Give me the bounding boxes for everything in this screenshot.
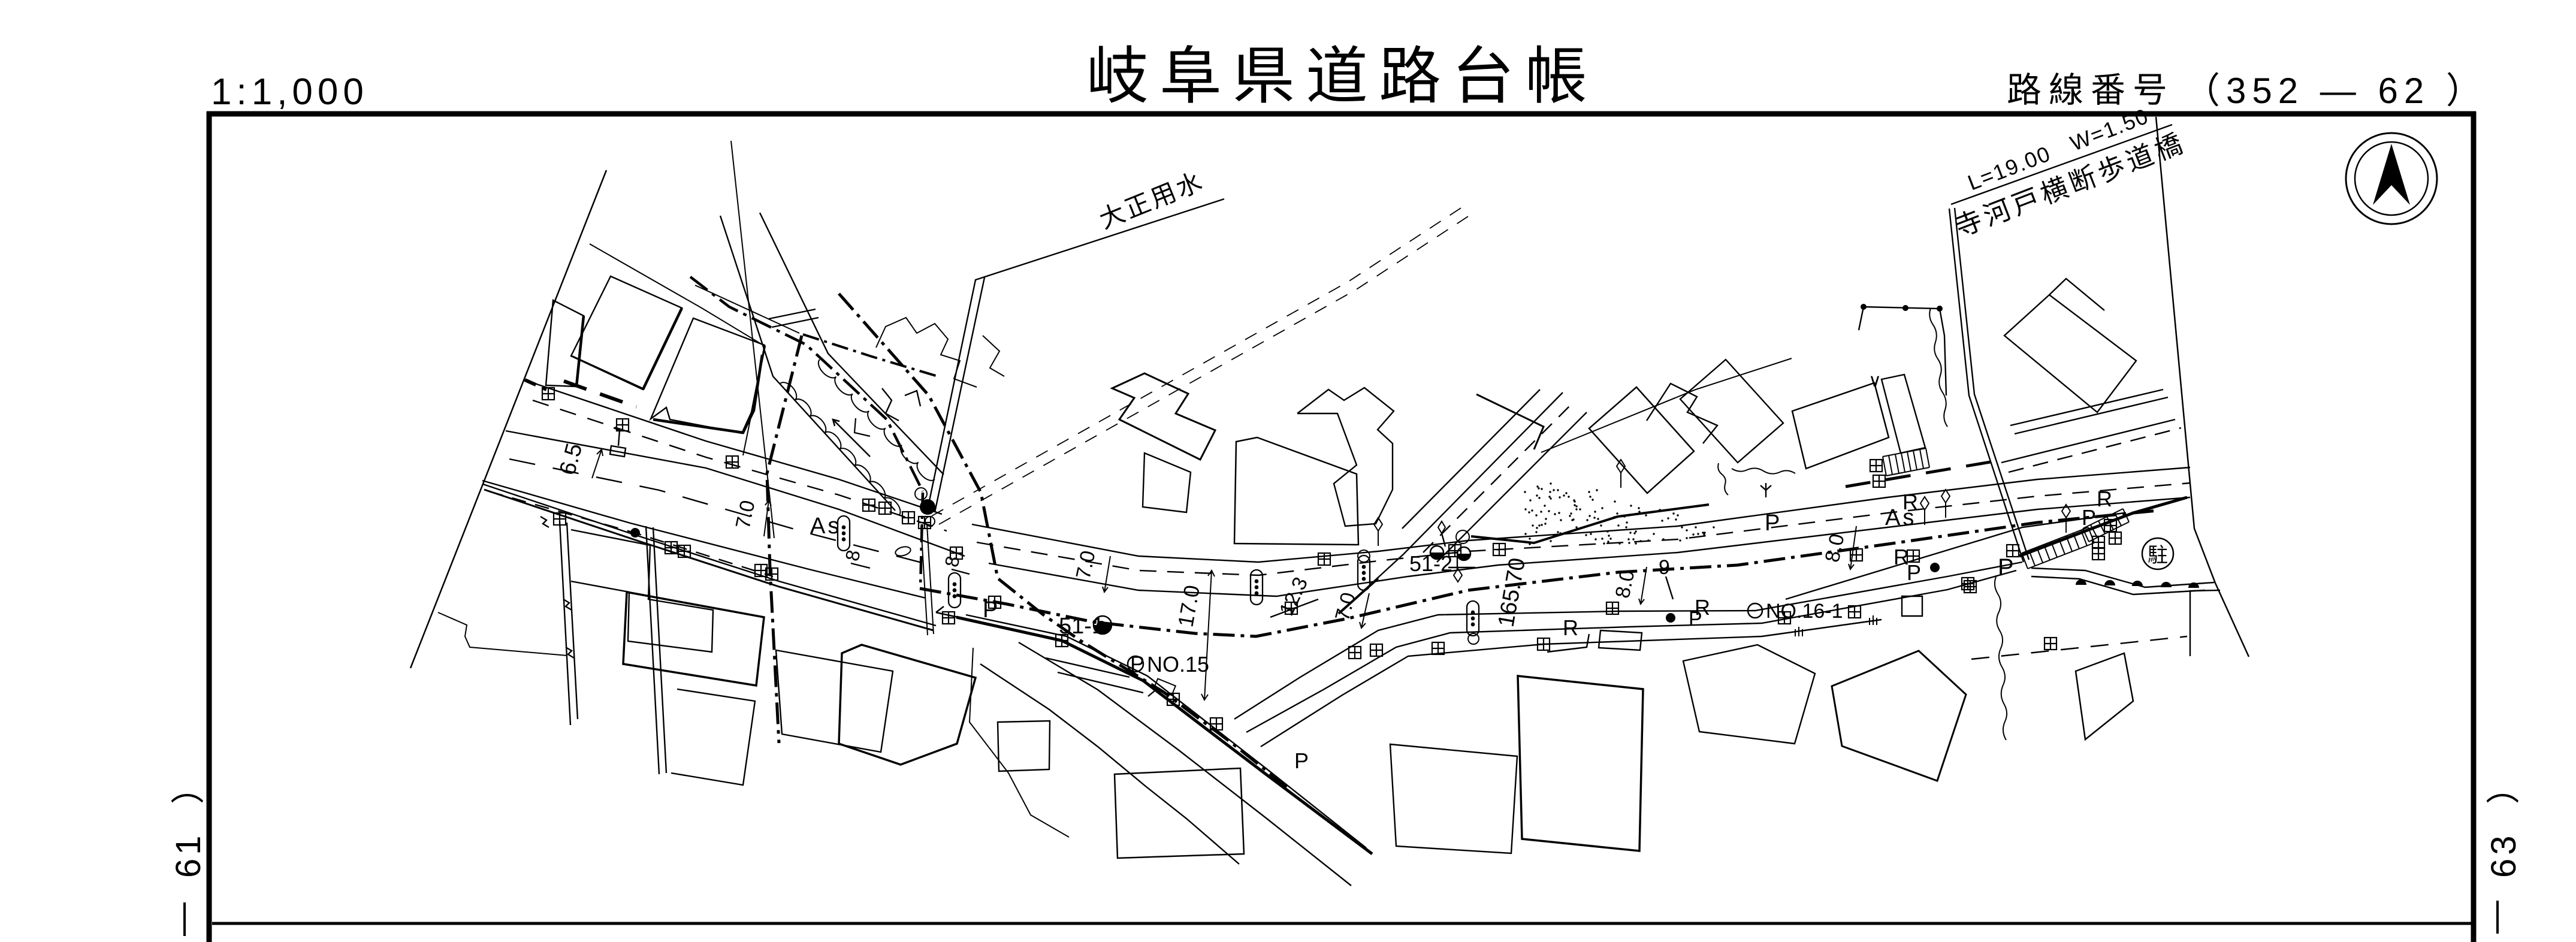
svg-text:P: P [2082,505,2096,530]
svg-text:R: R [1563,615,1578,640]
svg-text:岐阜県道路台帳: 岐阜県道路台帳 [1086,42,1598,111]
svg-text:駐: 駐 [2148,544,2168,567]
svg-text:P: P [983,597,998,623]
svg-text:∨: ∨ [1868,371,1882,391]
svg-text:63: 63 [2484,832,2523,878]
svg-text:R: R [1902,490,1918,514]
svg-text:51-1: 51-1 [1059,614,1104,639]
svg-text:NO.16-1: NO.16-1 [1766,600,1843,623]
svg-text:R: R [1695,595,1710,620]
svg-text:R: R [2097,487,2112,511]
svg-text:NO.15: NO.15 [1147,652,1209,677]
svg-text:R: R [1894,545,1909,569]
svg-text:51-2: 51-2 [1409,551,1452,576]
svg-text:61: 61 [169,832,208,878]
svg-text:P: P [1998,554,2014,581]
svg-text:P: P [1765,511,1780,536]
svg-text:路線番号: 路線番号 [2007,71,2175,110]
svg-text:P: P [1294,748,1309,773]
svg-text:）: ） [2485,771,2523,804]
svg-text:P: P [1130,651,1144,676]
svg-text:）: ） [170,771,207,804]
svg-text:1:1,000: 1:1,000 [211,71,369,113]
svg-text:9: 9 [1659,556,1670,579]
svg-text:As: As [810,514,841,539]
svg-text:（352 — 62 ）: （352 — 62 ） [2184,71,2488,111]
